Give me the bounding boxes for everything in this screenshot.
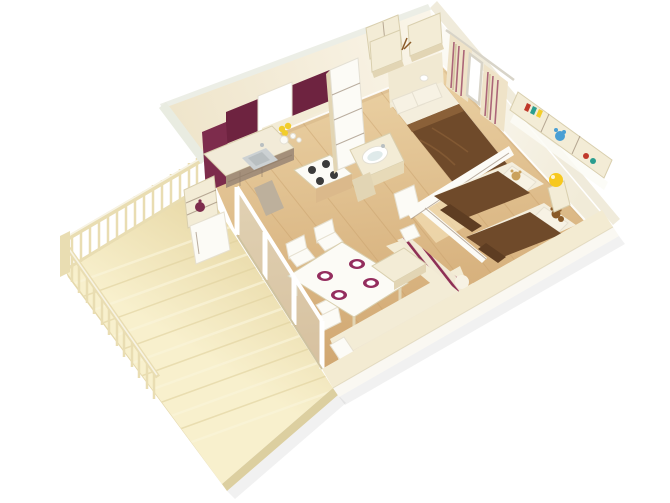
railing-corner-post <box>60 231 70 277</box>
floorplan-render <box>0 0 670 503</box>
window-mirror <box>467 54 482 104</box>
plate <box>349 259 365 269</box>
basin-faucet <box>381 144 385 148</box>
plate <box>331 290 347 300</box>
ball-lamp <box>549 173 563 187</box>
plate <box>363 278 379 288</box>
plate <box>317 271 333 281</box>
floorplan-screenshot <box>0 0 670 503</box>
wall-lamp <box>420 75 428 81</box>
faucet <box>260 143 264 147</box>
